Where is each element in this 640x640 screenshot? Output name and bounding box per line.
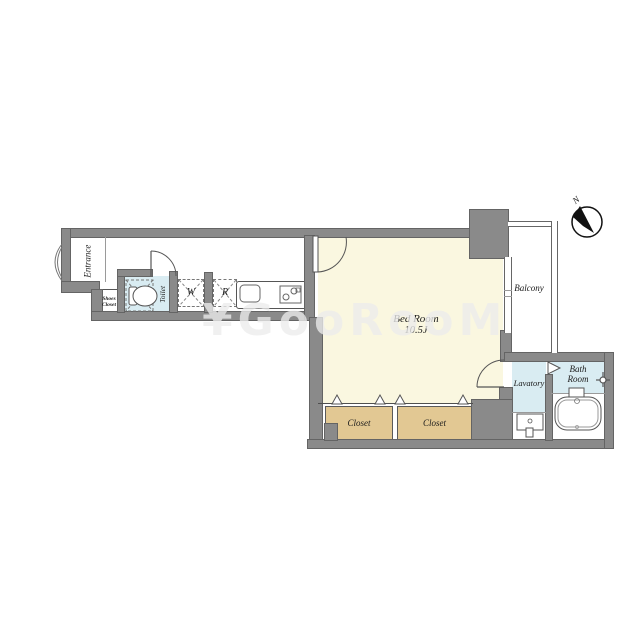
wall-top [62, 229, 472, 237]
wall-bottom-east [308, 440, 613, 448]
balcony-right-rail [551, 221, 558, 353]
bath-divider-line [551, 393, 605, 394]
wall-wr-stub [205, 273, 212, 312]
floor-plan: N Entrance Shoes Closet Toilet W R Bed R… [0, 0, 640, 640]
wall-bottom-west [92, 312, 308, 320]
bedroom-window [504, 257, 512, 333]
refrigerator-label: R [213, 279, 237, 307]
toilet-label: Toilet [156, 278, 170, 311]
wall-bath-top [505, 353, 613, 361]
wall-toilet-top [118, 270, 152, 276]
balcony-label: Balcony [507, 282, 551, 294]
wall-kitchen-bedroom [305, 236, 314, 320]
kitchen-counter [236, 281, 308, 309]
bedroom-window-tick2 [504, 296, 512, 297]
bathroom-label: Bath Room [558, 362, 598, 386]
closet-door-line [318, 403, 473, 404]
compass-icon: N [570, 194, 602, 237]
washing-machine-label: W [178, 279, 204, 307]
shoes-closet-label: Shoes Closet [96, 291, 122, 313]
lavatory-divider-line [512, 412, 546, 413]
compass-n-label: N [570, 194, 582, 207]
entrance-label: Entrance [70, 240, 104, 282]
lavatory-label: Lavatory [509, 378, 549, 390]
wall-toilet-right [170, 272, 177, 312]
lavatory-basin-floor [512, 413, 546, 440]
bedroom-floor-east [472, 257, 503, 403]
bedroom-label: Bed Room 10.5J [360, 310, 472, 340]
closet-right-label: Closet [397, 406, 472, 440]
wall-bedroom-west-lower [310, 318, 322, 448]
pillar-northeast [470, 210, 508, 258]
entrance-door-arc [55, 244, 62, 281]
closet-left-label: Closet [325, 406, 393, 440]
balcony-top-rail [508, 221, 552, 227]
wall-right [605, 353, 613, 448]
entrance-hall-line [105, 237, 106, 282]
bathtub-floor [551, 393, 605, 440]
